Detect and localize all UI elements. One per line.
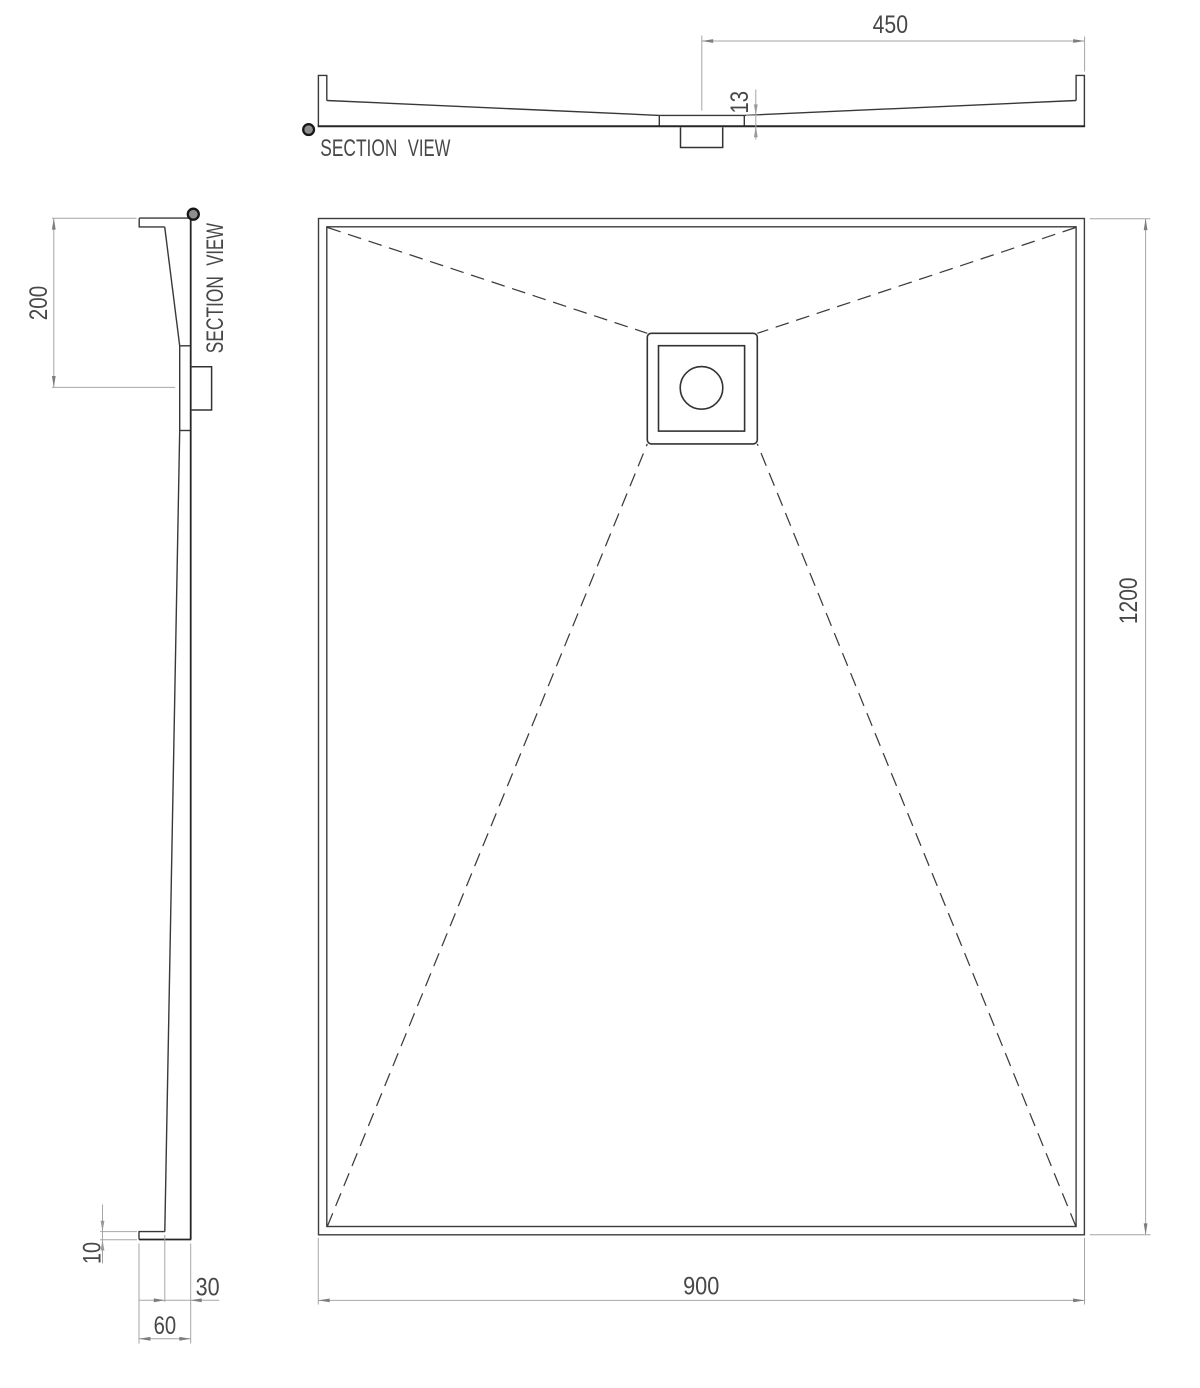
svg-text:SECTION: SECTION xyxy=(320,135,397,162)
svg-text:13: 13 xyxy=(726,91,754,114)
svg-text:SECTION: SECTION xyxy=(202,276,229,353)
svg-text:1200: 1200 xyxy=(1115,577,1143,624)
svg-text:450: 450 xyxy=(873,11,908,39)
svg-text:200: 200 xyxy=(25,286,53,320)
svg-text:VIEW: VIEW xyxy=(202,223,229,266)
svg-text:900: 900 xyxy=(683,1273,719,1301)
svg-text:30: 30 xyxy=(196,1273,220,1301)
svg-text:10: 10 xyxy=(78,1242,106,1264)
svg-text:VIEW: VIEW xyxy=(408,135,451,162)
svg-text:60: 60 xyxy=(154,1312,177,1340)
